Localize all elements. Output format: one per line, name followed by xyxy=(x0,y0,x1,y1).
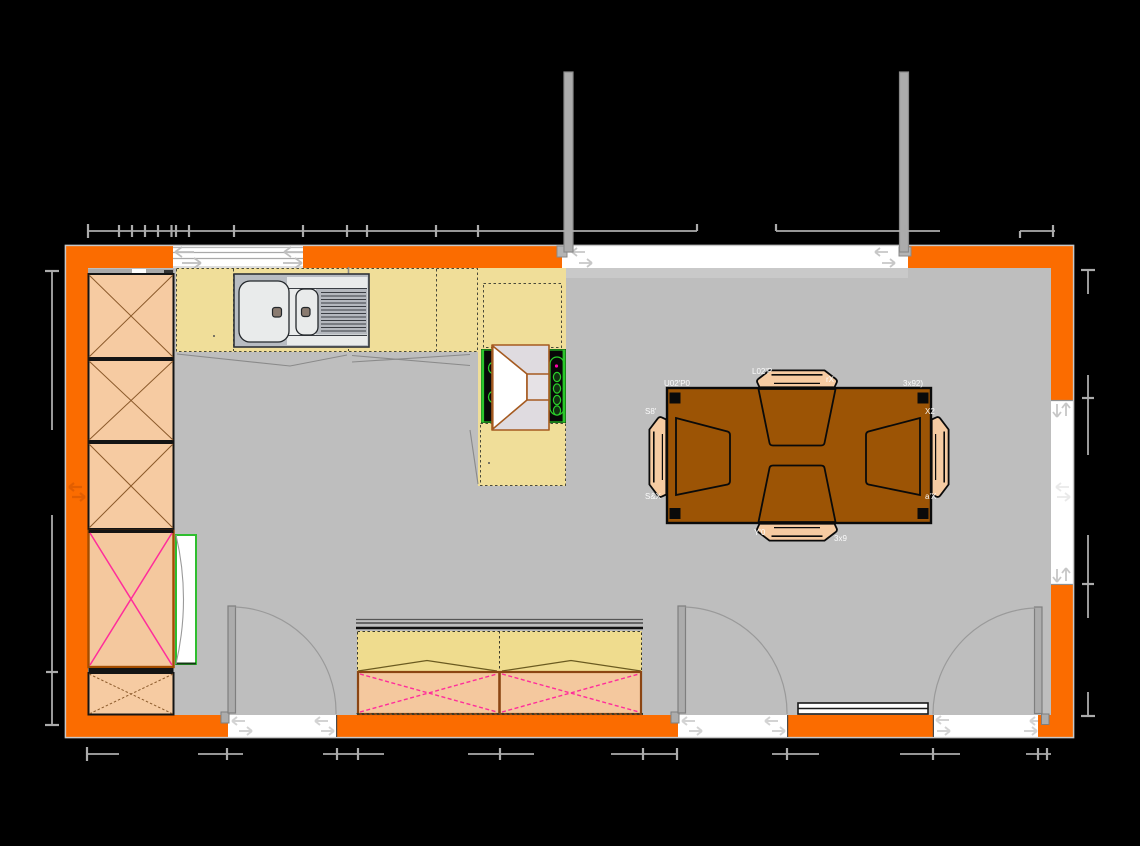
svg-text:Y'0: Y'0 xyxy=(754,528,766,537)
svg-text:3x92): 3x92) xyxy=(903,379,923,388)
svg-text:3x9: 3x9 xyxy=(834,534,847,543)
svg-text:L02'P: L02'P xyxy=(752,367,772,376)
svg-text:U02'P0: U02'P0 xyxy=(664,379,691,388)
svg-text:rX: rX xyxy=(826,375,835,384)
svg-text:a'X: a'X xyxy=(925,492,937,501)
svg-text:X2: X2 xyxy=(925,407,935,416)
svg-text:S8': S8' xyxy=(645,407,657,416)
svg-text:S&X: S&X xyxy=(645,492,662,501)
